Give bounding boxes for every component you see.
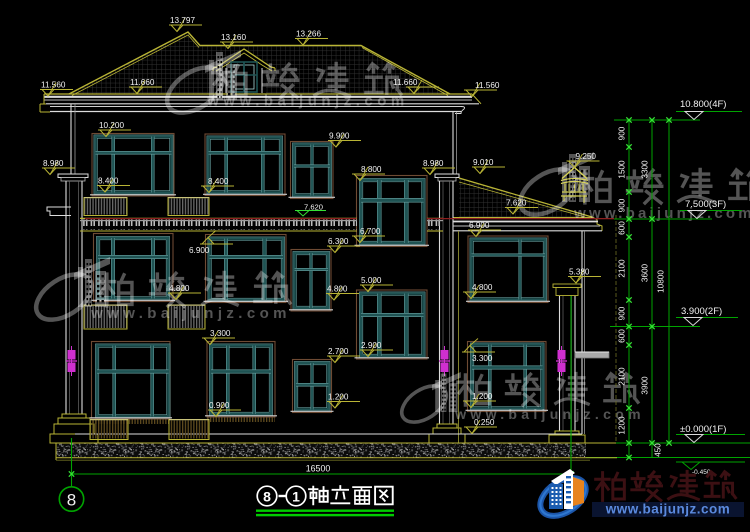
svg-text:4.800: 4.800: [472, 283, 493, 292]
svg-text:600: 600: [618, 221, 627, 235]
svg-text:9.010: 9.010: [473, 158, 494, 167]
svg-text:1500: 1500: [618, 160, 627, 179]
svg-text:1: 1: [292, 489, 300, 505]
svg-text:900: 900: [618, 198, 627, 212]
svg-text:11.560: 11.560: [475, 81, 500, 90]
svg-text:8.980: 8.980: [423, 159, 444, 168]
svg-text:11.560: 11.560: [41, 81, 66, 90]
svg-text:13.797: 13.797: [170, 16, 195, 25]
svg-text:3900: 3900: [641, 376, 650, 395]
svg-text:13.266: 13.266: [296, 30, 321, 39]
svg-text:6.900: 6.900: [469, 221, 490, 230]
svg-text:9.900: 9.900: [329, 132, 350, 141]
svg-text:900: 900: [618, 306, 627, 320]
svg-text:8.400: 8.400: [208, 177, 229, 186]
svg-text:5.000: 5.000: [361, 276, 382, 285]
svg-text:2.900: 2.900: [361, 341, 382, 350]
svg-text:0.250: 0.250: [474, 418, 495, 427]
svg-text:7.500(3F): 7.500(3F): [685, 199, 726, 210]
svg-text:2100: 2100: [618, 259, 627, 278]
svg-text:5.380: 5.380: [569, 268, 590, 277]
svg-text:11.660: 11.660: [130, 78, 155, 87]
svg-text:2.700: 2.700: [328, 347, 349, 356]
svg-text:450: 450: [654, 443, 663, 457]
svg-text:0.900: 0.900: [209, 401, 230, 410]
svg-text:3.300: 3.300: [472, 354, 493, 363]
svg-text:4.800: 4.800: [169, 284, 190, 293]
svg-text:±0.000(1F): ±0.000(1F): [680, 424, 726, 435]
svg-text:8: 8: [263, 489, 271, 505]
svg-text:7.620: 7.620: [304, 203, 323, 212]
svg-text:8.980: 8.980: [43, 159, 64, 168]
svg-text:3300: 3300: [641, 160, 650, 179]
svg-text:10800: 10800: [657, 270, 666, 293]
svg-text:6.700: 6.700: [360, 227, 381, 236]
svg-text:www.baijunjz.com: www.baijunjz.com: [605, 502, 731, 517]
svg-text:8.800: 8.800: [361, 165, 382, 174]
svg-text:9.250: 9.250: [576, 152, 597, 161]
svg-text:3600: 3600: [641, 263, 650, 282]
svg-text:1200: 1200: [618, 416, 627, 435]
svg-text:1.200: 1.200: [328, 393, 349, 402]
svg-text:11.660: 11.660: [393, 78, 418, 87]
svg-text:6.900: 6.900: [189, 246, 210, 255]
svg-text:16500: 16500: [306, 464, 331, 474]
svg-text:2100: 2100: [618, 367, 627, 386]
svg-text:10.200: 10.200: [99, 121, 124, 130]
svg-text:www.baijunjz.com: www.baijunjz.com: [90, 305, 291, 322]
svg-text:8: 8: [67, 491, 76, 510]
svg-text:3.900(2F): 3.900(2F): [681, 306, 722, 317]
svg-text:8.400: 8.400: [98, 177, 119, 186]
svg-text:900: 900: [618, 126, 627, 140]
svg-text:3.300: 3.300: [210, 329, 231, 338]
svg-text:7.620: 7.620: [506, 199, 527, 208]
svg-text:4.800: 4.800: [327, 285, 348, 294]
svg-text:6.300: 6.300: [328, 237, 349, 246]
svg-text:600: 600: [618, 329, 627, 343]
svg-text:13.160: 13.160: [221, 33, 246, 42]
svg-text:10.800(4F): 10.800(4F): [680, 99, 726, 110]
svg-text:www.baijunjz.com: www.baijunjz.com: [206, 93, 408, 110]
svg-text:1.200: 1.200: [472, 392, 493, 401]
